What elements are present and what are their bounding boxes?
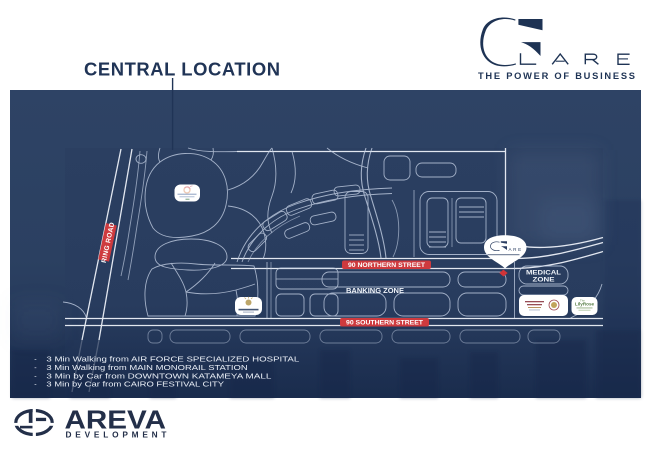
svg-text:CENTRAL LOCATION: CENTRAL LOCATION [84,58,280,79]
svg-text:MEDICAL: MEDICAL [526,270,561,277]
svg-text:3 Min by Car from DOWNTOWN KAT: 3 Min by Car from DOWNTOWN KATAMEYA MALL [46,372,271,380]
svg-text:ZONE: ZONE [533,277,556,284]
svg-text:3 Min by Car from CAIRO FESTIV: 3 Min by Car from CAIRO FESTIVAL CITY [46,381,224,389]
svg-text:BANKING ZONE: BANKING ZONE [346,288,404,295]
svg-text:DEVELOPMENT: DEVELOPMENT [66,430,167,440]
svg-text:90 SOUTHERN STREET: 90 SOUTHERN STREET [346,320,423,327]
svg-text:3 Min Walking from MAIN MONORA: 3 Min Walking from MAIN MONORAIL STATION [46,364,247,372]
svg-text:3 Min Walking from AIR FORCE S: 3 Min Walking from AIR FORCE SPECIALIZED… [46,356,299,364]
svg-text:The: The [580,299,585,303]
svg-text:ARE: ARE [509,247,523,252]
svg-text:90 NORTHERN STREET: 90 NORTHERN STREET [348,262,425,269]
